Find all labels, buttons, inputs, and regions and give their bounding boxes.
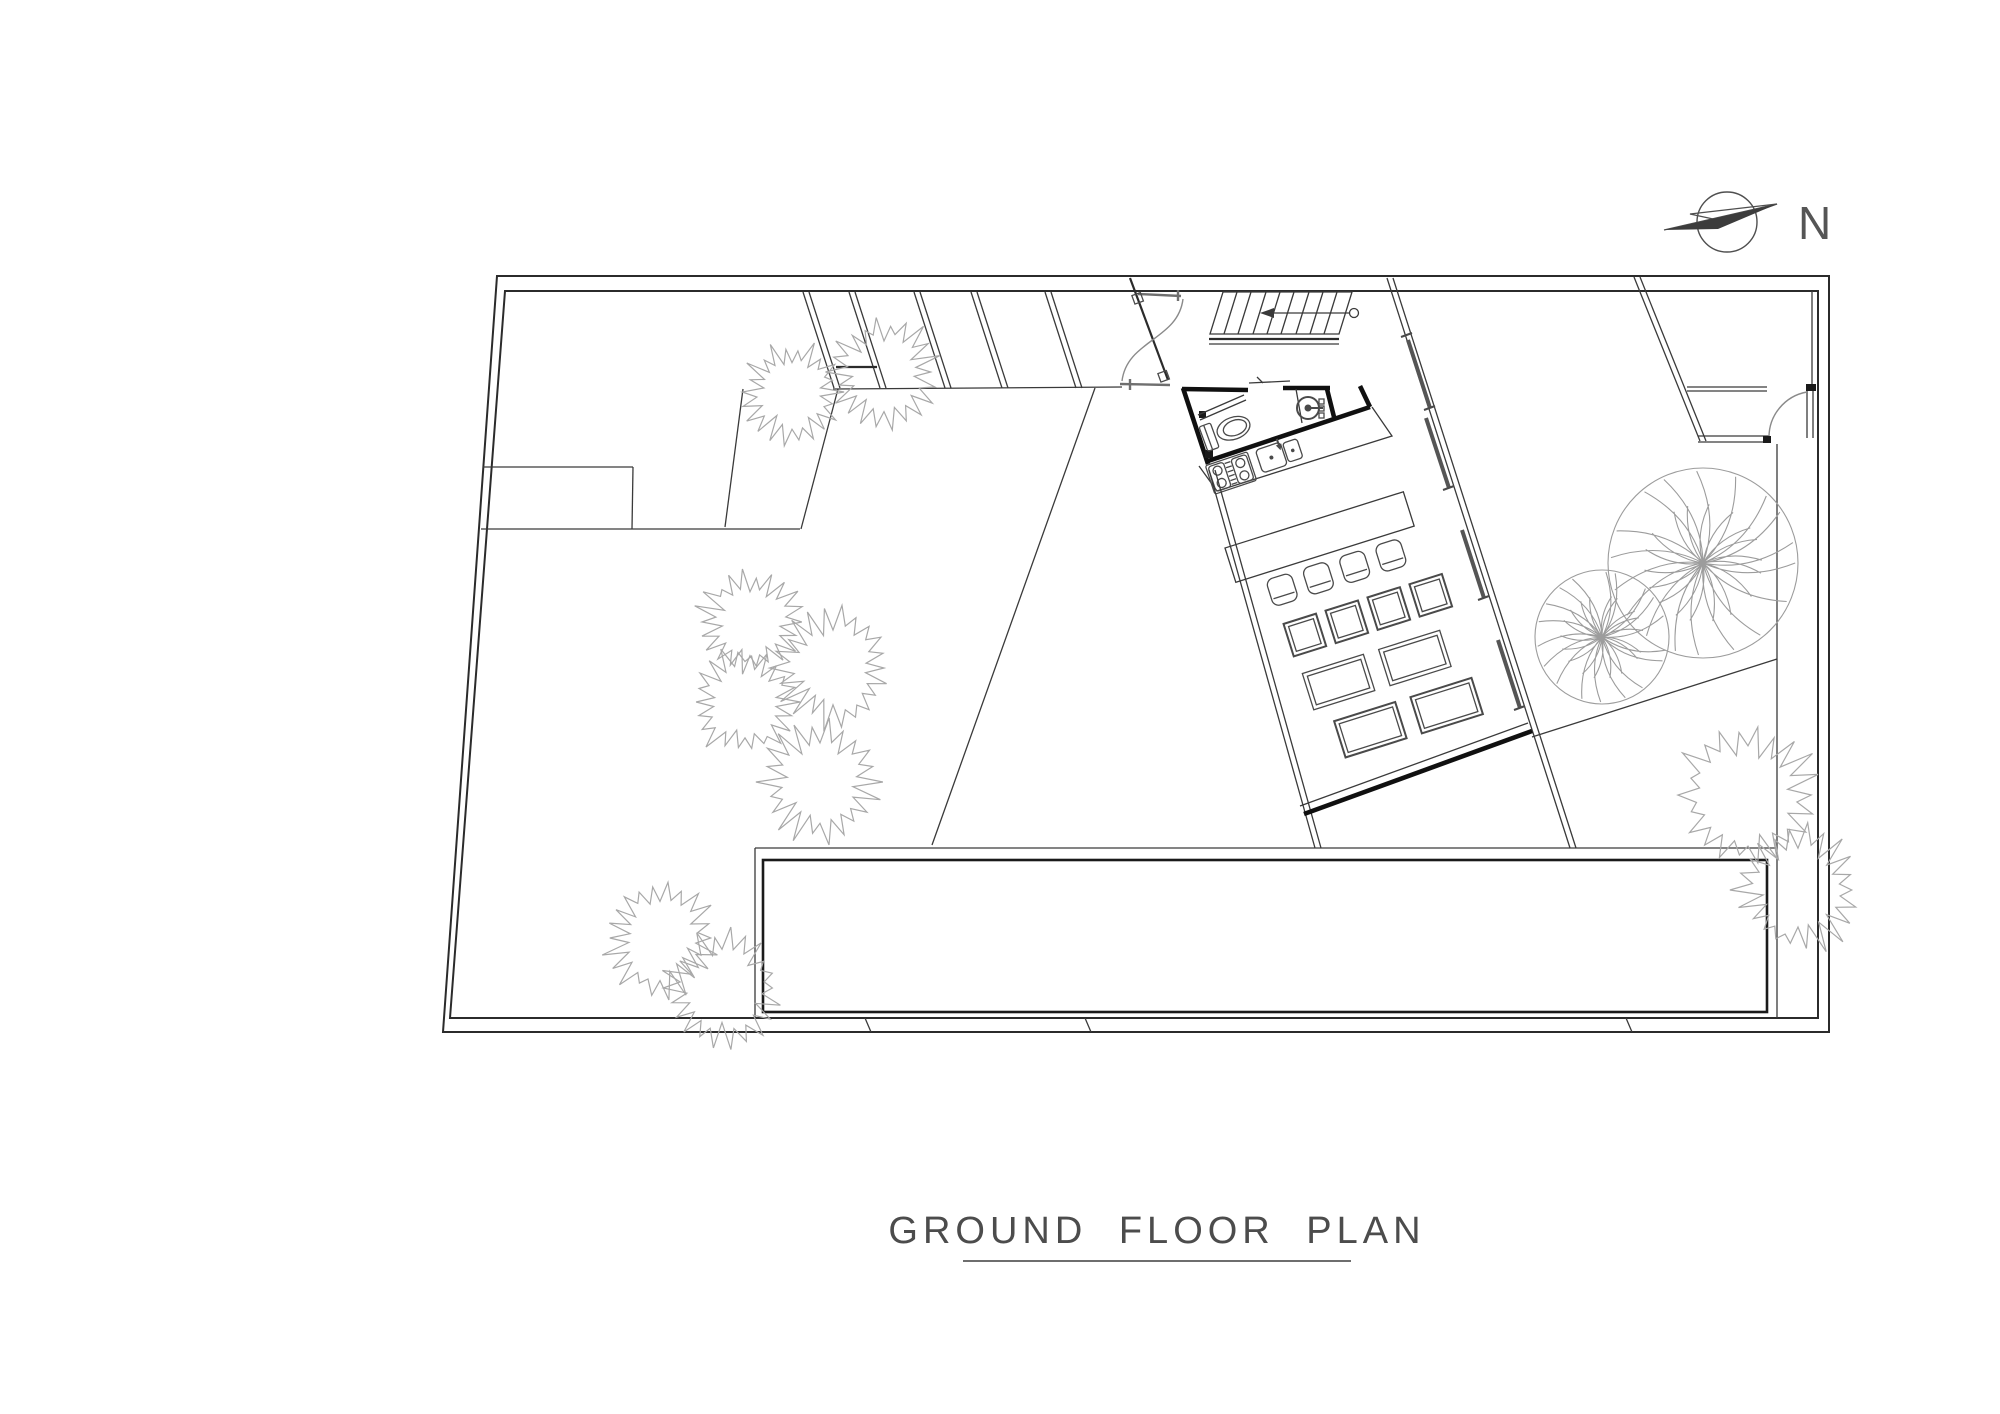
door-swing-arc — [1122, 299, 1183, 381]
shrub-symbol — [742, 343, 844, 446]
storage-room — [1634, 277, 1816, 443]
square-tables — [1284, 574, 1453, 656]
terrace-court — [755, 848, 1777, 1018]
rectangular-tables — [1302, 625, 1483, 762]
title-text: GROUND FLOOR PLAN — [888, 1210, 1425, 1252]
entry-door — [1120, 278, 1183, 390]
vegetation — [602, 318, 1856, 1050]
room-door — [1763, 384, 1816, 443]
yard-terrace-lines — [481, 388, 1095, 845]
floor-plan-drawing: N GROUND FLOOR PLAN — [0, 0, 2000, 1414]
drawing-title: GROUND FLOOR PLAN — [888, 1210, 1425, 1261]
shrub-symbol — [602, 882, 717, 1000]
north-label: N — [1798, 197, 1831, 249]
hall-furniture — [1225, 488, 1486, 773]
bar-counter — [1225, 492, 1414, 583]
louver-fin-walls — [803, 292, 1122, 389]
shrub-symbol — [756, 718, 883, 845]
floor-plan-sheet: N GROUND FLOOR PLAN — [0, 0, 2000, 1414]
site-boundary-wall — [443, 276, 1829, 1032]
washbasin-icon — [1297, 397, 1324, 419]
bathroom-block — [1182, 377, 1392, 494]
shrub-symbol — [826, 318, 941, 431]
glazed-panel-marks — [1401, 333, 1525, 710]
north-arrow-icon: N — [1664, 192, 1831, 252]
shrub-symbol — [1730, 823, 1856, 952]
shrub-symbol — [1678, 727, 1818, 863]
bar-stools — [1266, 538, 1408, 607]
staircase — [1209, 292, 1359, 344]
